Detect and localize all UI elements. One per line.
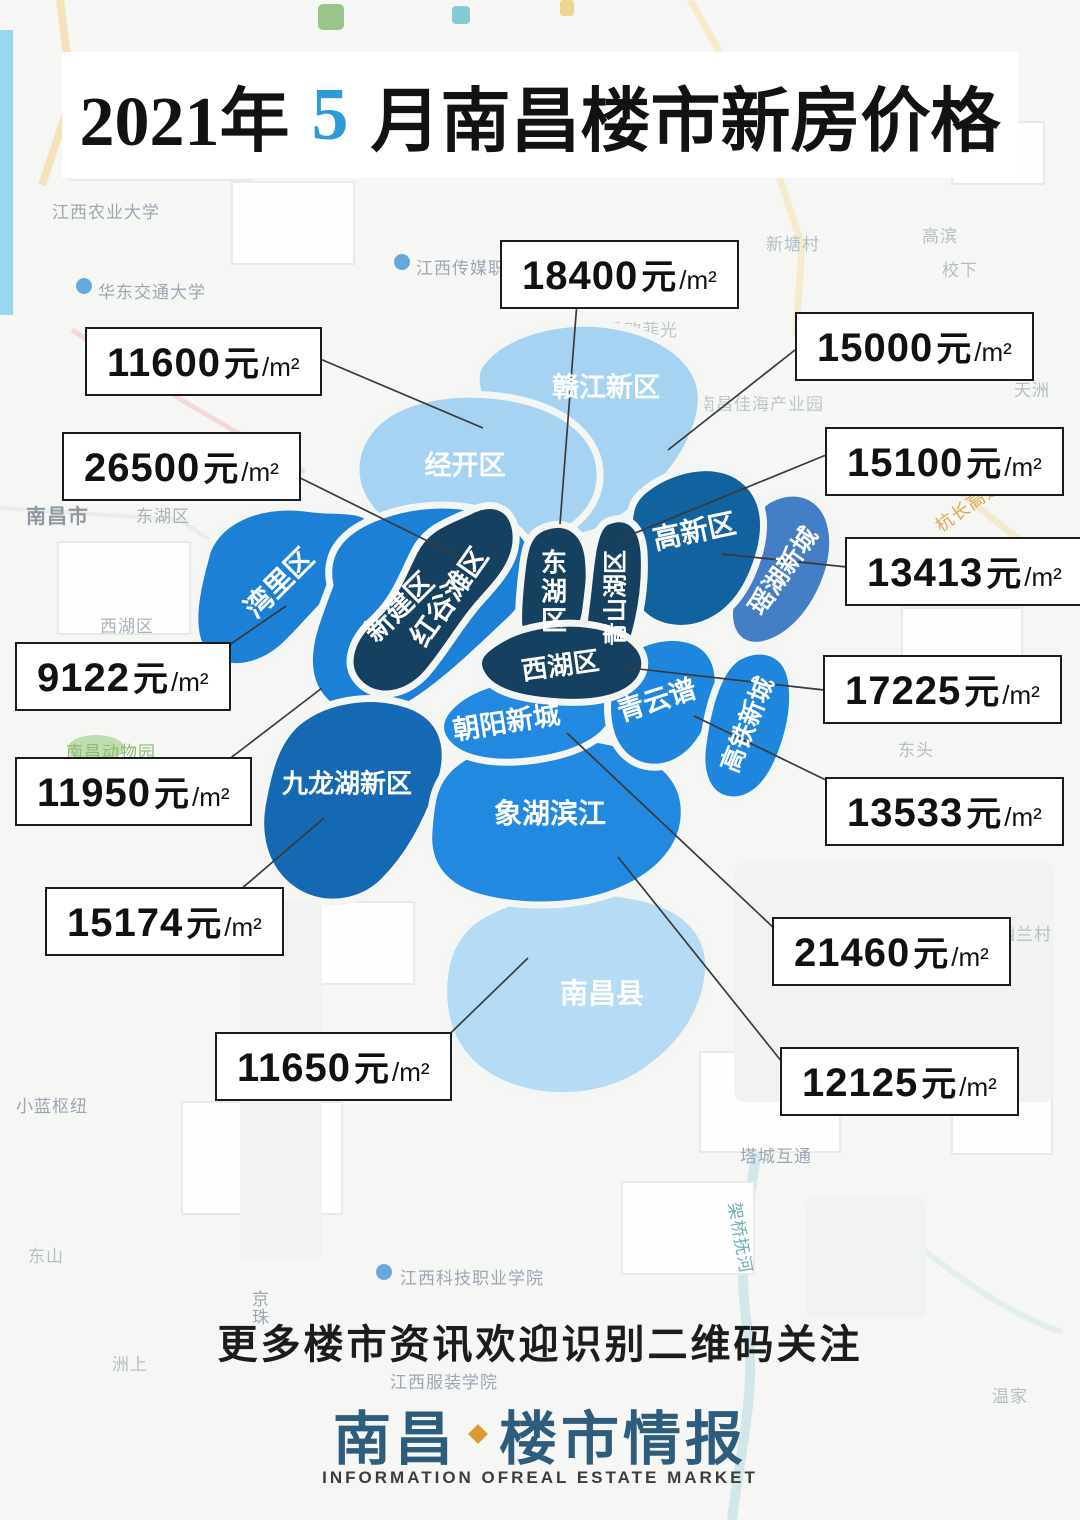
infographic-canvas: 江西农业大学 华东交通大学 江西传媒职业学院 南昌欧菲光 新塘村 高滨 校下 南… [0,0,1080,1520]
region-label-nanchang-county: 南昌县 [560,972,644,1012]
brand-logo-left: 南昌 [333,1392,457,1476]
region-label-qingshanhu: 青山湖区 [596,550,631,646]
price-label-xihu: 17225元/m² [823,655,1062,724]
region-label-jingkai: 经开区 [425,444,506,483]
price-label-xinjian: 11950元/m² [15,757,252,826]
price-label-chaoyang: 21460元/m² [772,917,1011,986]
price-label-ganjiang: 15000元/m² [795,312,1034,381]
region-label-jiulonghu: 九龙湖新区 [282,764,412,801]
region-label-xianghu: 象湖滨江 [494,792,606,832]
price-label-qingshanhu: 15100元/m² [825,427,1064,496]
title-suffix: 月南昌楼市新房价格 [371,65,1001,166]
price-label-honggutan: 26500元/m² [62,432,301,501]
region-label-ganjiang: 赣江新区 [552,366,660,405]
region-label-donghu: 东湖区 [535,549,572,636]
price-label-xianghu: 12125元/m² [780,1047,1019,1116]
price-label-nanchang-county: 11650元/m² [215,1032,452,1101]
price-label-qingyunpu: 13533元/m² [825,777,1064,846]
qr-follow-cta: 更多楼市资讯欢迎识别二维码关注 [0,1312,1080,1370]
title-banner: 2021年 5 月南昌楼市新房价格 [62,52,1018,178]
price-label-gaoxin: 13413元/m² [845,537,1080,606]
price-label-jingkai: 11600元/m² [85,327,322,396]
brand-tagline: INFORMATION OFREAL ESTATE MARKET [0,1468,1080,1488]
title-prefix: 2021年 [80,65,290,166]
price-label-jiulonghu: 15174元/m² [45,887,284,956]
brand-logo-right: 楼市情报 [499,1392,747,1476]
price-label-wanli: 9122元/m² [15,642,231,711]
brand-logo: 南昌 楼市情报 [0,1392,1080,1476]
diamond-separator-icon [468,1424,488,1444]
title-month: 5 [312,73,349,158]
price-label-donghu: 18400元/m² [500,240,739,309]
